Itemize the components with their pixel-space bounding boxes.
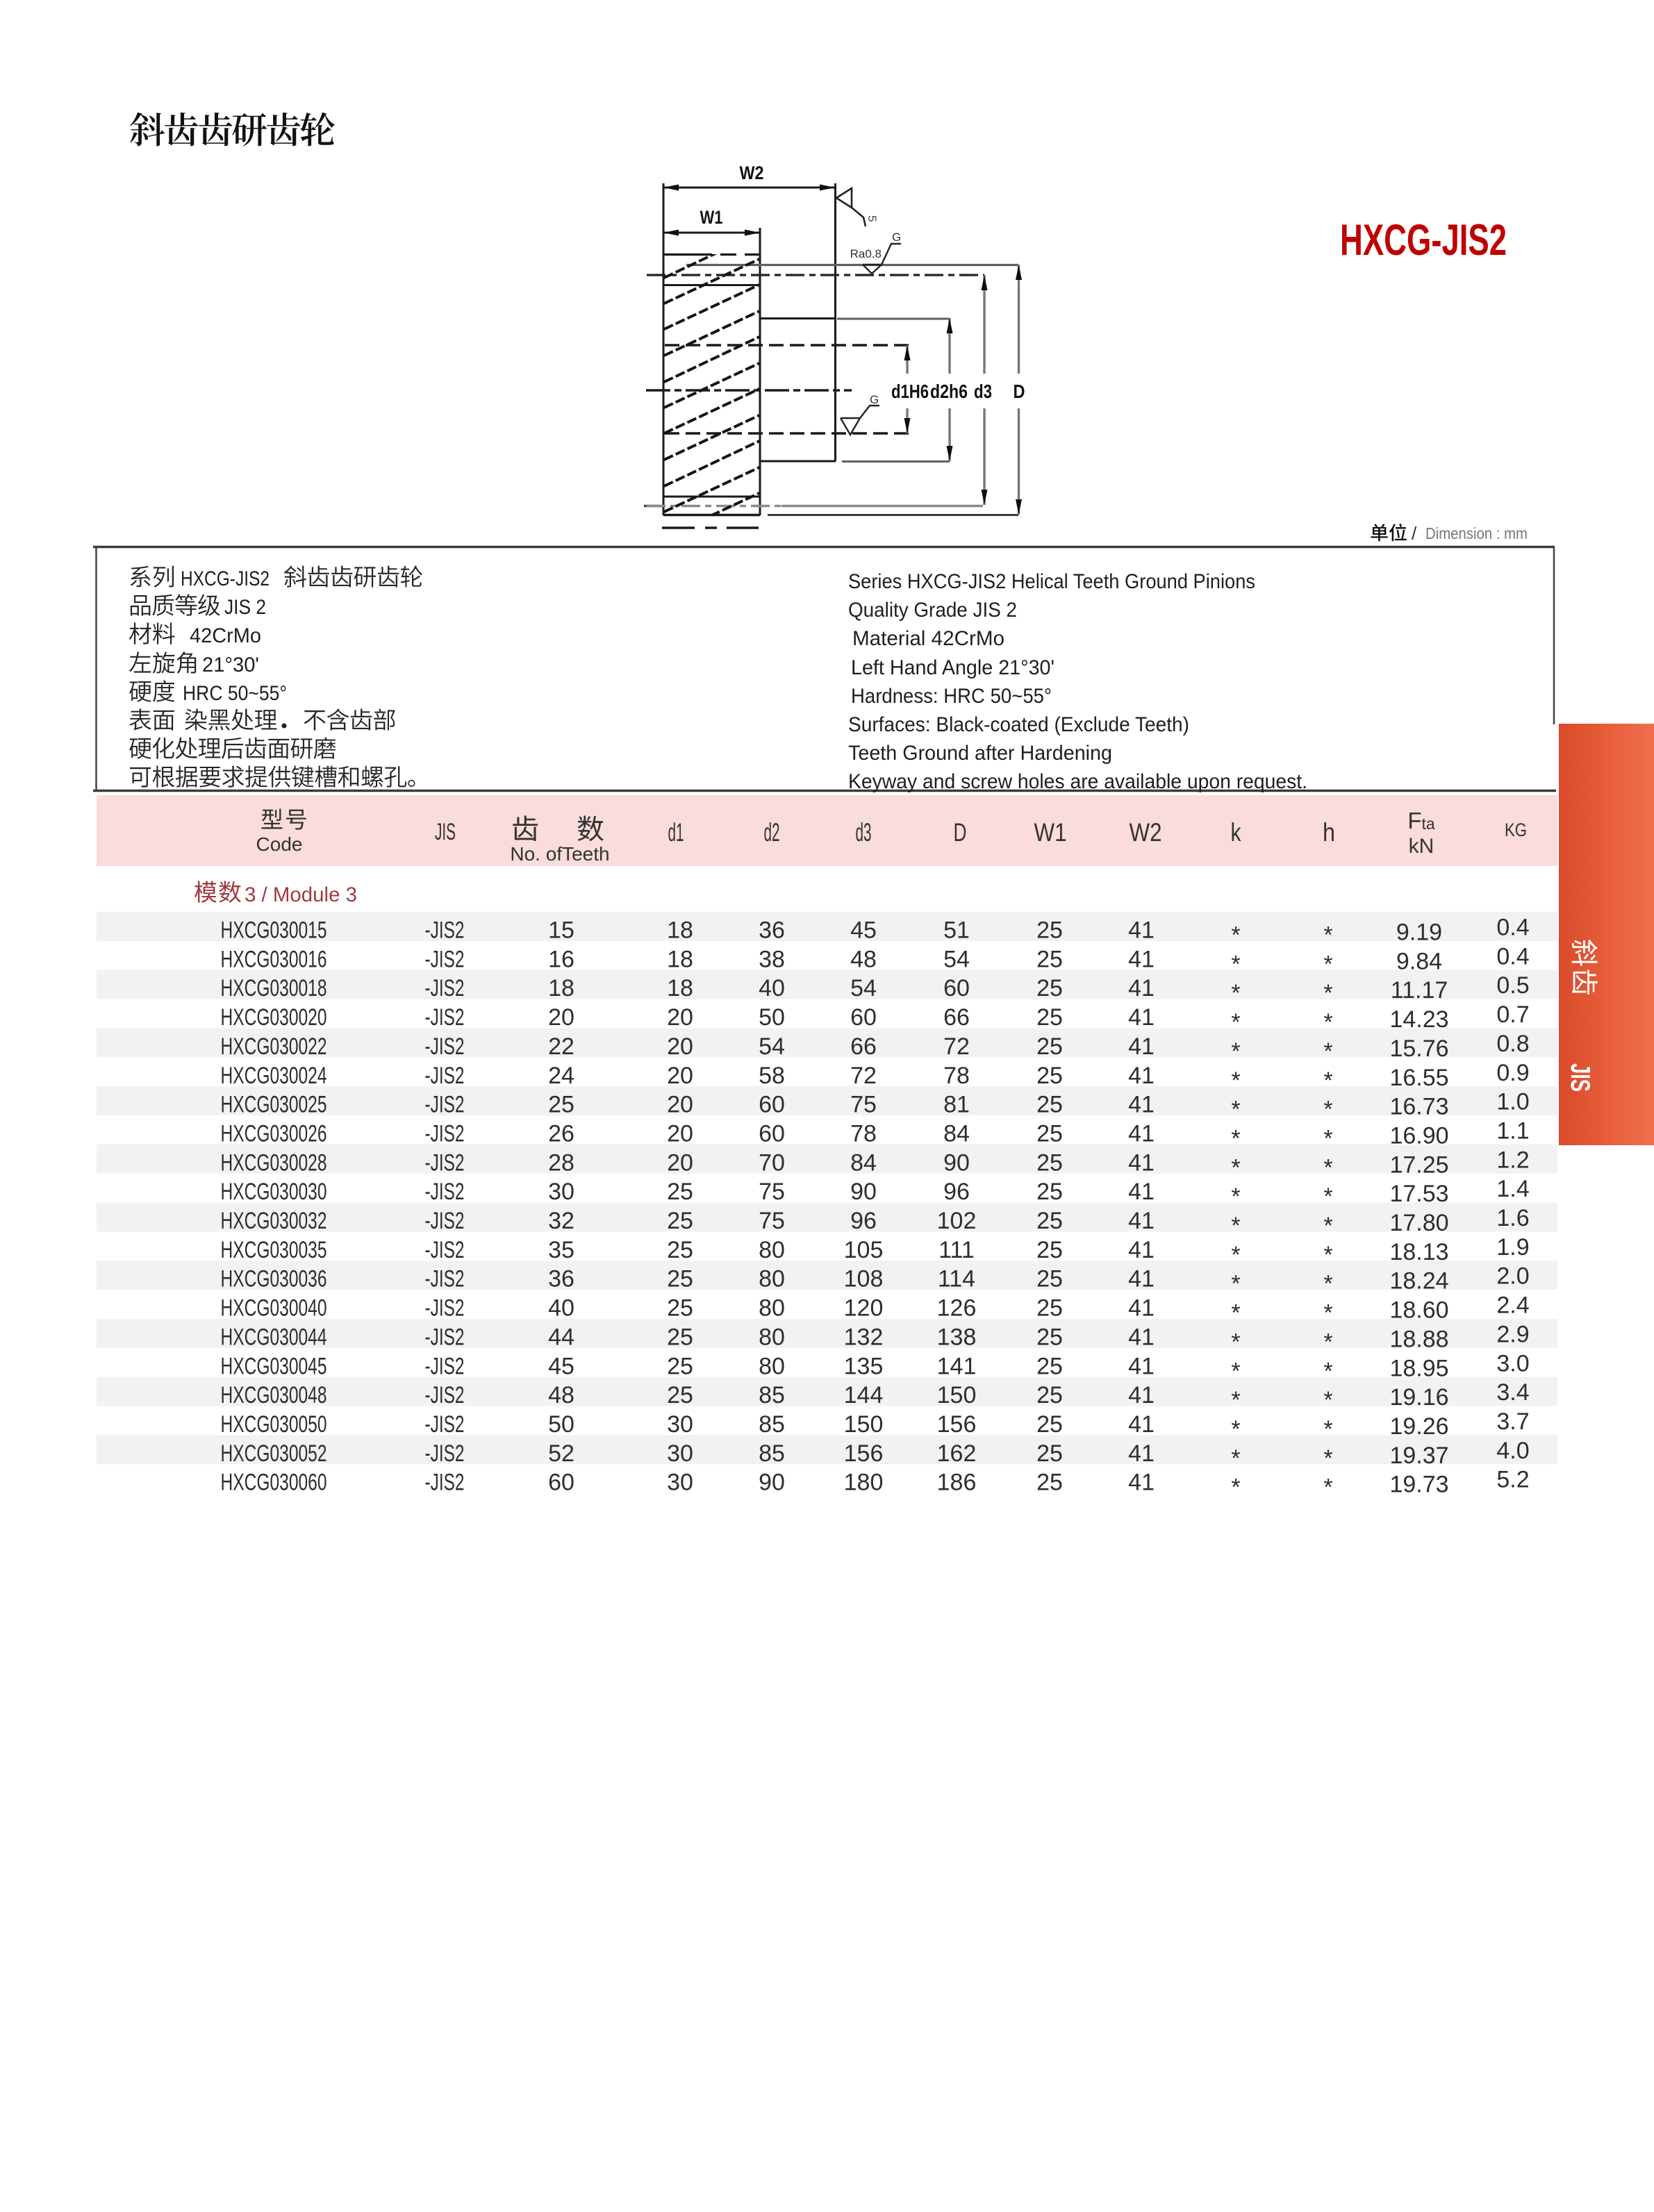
svg-text:-JIS2: -JIS2 <box>425 975 465 1001</box>
svg-text:Code: Code <box>256 833 303 855</box>
svg-text:48: 48 <box>548 1382 574 1408</box>
svg-text:Teeth Ground after Hardening: Teeth Ground after Hardening <box>848 742 1112 765</box>
svg-text:60: 60 <box>548 1470 574 1496</box>
svg-text:k: k <box>1231 818 1241 847</box>
svg-text:144: 144 <box>844 1382 884 1408</box>
svg-text:25: 25 <box>548 1092 574 1118</box>
svg-text:-JIS2: -JIS2 <box>425 1266 465 1292</box>
svg-text:2.9: 2.9 <box>1496 1321 1529 1347</box>
svg-text:*: * <box>1231 1271 1240 1297</box>
svg-text:Series HXCG-JIS2 Helical Tee: Series HXCG-JIS2 Helical Teeth Ground Pi… <box>848 570 1255 593</box>
svg-text:41: 41 <box>1128 1470 1155 1496</box>
svg-text:25: 25 <box>1036 1295 1063 1322</box>
svg-text:41: 41 <box>1128 1033 1155 1060</box>
svg-text:JIS: JIS <box>1565 1063 1595 1092</box>
svg-text:16: 16 <box>548 946 574 972</box>
svg-text:41: 41 <box>1128 946 1155 972</box>
svg-text:18: 18 <box>667 917 693 944</box>
svg-text:25: 25 <box>1036 1208 1063 1234</box>
svg-text:*: * <box>1323 1038 1332 1065</box>
svg-text:25: 25 <box>1036 1440 1063 1467</box>
svg-text:3.4: 3.4 <box>1496 1379 1529 1406</box>
svg-text:72: 72 <box>943 1033 970 1060</box>
svg-text:20: 20 <box>667 1120 693 1147</box>
svg-text:41: 41 <box>1128 1063 1155 1089</box>
svg-text:*: * <box>1323 1387 1332 1413</box>
svg-text:-JIS2: -JIS2 <box>425 1179 465 1205</box>
svg-text:-JIS2: -JIS2 <box>425 1353 465 1379</box>
svg-text:25: 25 <box>667 1179 693 1205</box>
svg-text:41: 41 <box>1128 1120 1155 1147</box>
svg-text:JIS 2: JIS 2 <box>224 596 266 619</box>
svg-text:HXCG030025: HXCG030025 <box>221 1092 327 1118</box>
svg-text:D: D <box>954 818 967 847</box>
svg-text:HXCG030044: HXCG030044 <box>221 1324 327 1350</box>
svg-text:156: 156 <box>844 1440 884 1467</box>
svg-text:20: 20 <box>667 1063 693 1089</box>
svg-text:25: 25 <box>1036 946 1063 972</box>
svg-text:*: * <box>1231 1445 1240 1472</box>
svg-text:kN: kN <box>1409 835 1434 858</box>
svg-text:-JIS2: -JIS2 <box>425 1033 465 1060</box>
svg-text:*: * <box>1323 1271 1332 1297</box>
svg-text:186: 186 <box>937 1470 977 1496</box>
svg-text:*: * <box>1323 922 1332 949</box>
svg-text:32: 32 <box>548 1208 574 1234</box>
svg-text:18.24: 18.24 <box>1389 1268 1448 1295</box>
svg-text:0.7: 0.7 <box>1496 1001 1529 1028</box>
svg-text:Keyway and screw holes are a: Keyway and screw holes are available upo… <box>848 770 1307 793</box>
svg-text:18.88: 18.88 <box>1389 1326 1448 1352</box>
svg-text:20: 20 <box>667 1004 693 1031</box>
svg-text:141: 141 <box>937 1353 977 1379</box>
svg-text:-JIS2: -JIS2 <box>425 1149 465 1176</box>
svg-text:40: 40 <box>759 975 785 1001</box>
svg-text:41: 41 <box>1128 1149 1155 1176</box>
svg-text:-JIS2: -JIS2 <box>425 1004 465 1031</box>
svg-text:HXCG030016: HXCG030016 <box>221 946 327 972</box>
svg-text:W1: W1 <box>1034 818 1067 847</box>
svg-text:40: 40 <box>548 1295 574 1322</box>
svg-text:HXCG030030: HXCG030030 <box>221 1179 327 1205</box>
svg-text:36: 36 <box>759 917 785 944</box>
svg-text:78: 78 <box>943 1063 970 1089</box>
svg-text:25: 25 <box>1036 1120 1063 1147</box>
svg-text:18: 18 <box>667 946 693 972</box>
svg-text:HXCG030035: HXCG030035 <box>221 1237 327 1263</box>
svg-text:0.8: 0.8 <box>1496 1031 1529 1057</box>
svg-text:54: 54 <box>850 975 877 1001</box>
svg-text:41: 41 <box>1128 1324 1155 1350</box>
svg-text:W2: W2 <box>1130 818 1162 847</box>
svg-text:111: 111 <box>938 1237 975 1263</box>
svg-text:25: 25 <box>1036 1470 1063 1496</box>
svg-text:9.19: 9.19 <box>1396 920 1442 946</box>
svg-text:120: 120 <box>844 1295 884 1322</box>
svg-text:-JIS2: -JIS2 <box>425 1382 465 1408</box>
svg-text:41: 41 <box>1128 1353 1155 1379</box>
svg-text:156: 156 <box>937 1411 977 1438</box>
svg-text:25: 25 <box>1036 1149 1063 1176</box>
svg-text:180: 180 <box>844 1470 884 1496</box>
svg-text:90: 90 <box>943 1149 970 1176</box>
svg-text:30: 30 <box>667 1470 693 1496</box>
svg-text:30: 30 <box>667 1411 693 1438</box>
svg-text:138: 138 <box>937 1324 977 1350</box>
svg-text:25: 25 <box>1036 917 1063 944</box>
svg-text:*: * <box>1323 1154 1332 1181</box>
svg-text:41: 41 <box>1128 1208 1155 1234</box>
svg-text:21°30': 21°30' <box>202 654 259 676</box>
svg-text:*: * <box>1323 1474 1332 1501</box>
svg-text:41: 41 <box>1128 1411 1155 1438</box>
svg-text:135: 135 <box>844 1353 884 1379</box>
svg-text:d3: d3 <box>974 381 992 402</box>
svg-text:5.2: 5.2 <box>1496 1467 1529 1493</box>
svg-text:25: 25 <box>1036 1324 1063 1350</box>
svg-text:114: 114 <box>938 1266 975 1292</box>
svg-text:1.6: 1.6 <box>1496 1205 1529 1231</box>
svg-text:Surfaces: Black-coated (Excl: Surfaces: Black-coated (Exclude Teeth) <box>848 713 1189 736</box>
svg-text:24: 24 <box>548 1063 574 1089</box>
svg-text:66: 66 <box>850 1033 877 1060</box>
svg-text:G: G <box>870 393 879 406</box>
svg-text:41: 41 <box>1128 1266 1155 1292</box>
svg-text:11.17: 11.17 <box>1391 977 1448 1004</box>
svg-text:*: * <box>1231 1097 1240 1123</box>
svg-text:*: * <box>1323 1445 1332 1472</box>
svg-text:25: 25 <box>1036 1033 1063 1060</box>
svg-text:-JIS2: -JIS2 <box>425 946 465 972</box>
svg-text:36: 36 <box>548 1266 574 1292</box>
svg-text:50: 50 <box>759 1004 785 1031</box>
svg-text:41: 41 <box>1128 1179 1155 1205</box>
svg-text:G: G <box>892 231 901 244</box>
svg-text:*: * <box>1231 1387 1240 1413</box>
svg-text:80: 80 <box>759 1295 785 1322</box>
svg-text:25: 25 <box>1036 1004 1063 1031</box>
svg-text:70: 70 <box>759 1149 785 1176</box>
svg-text:41: 41 <box>1128 1004 1155 1031</box>
svg-text:96: 96 <box>850 1208 877 1234</box>
svg-text:HXCG030060: HXCG030060 <box>221 1470 327 1496</box>
svg-text:Hardness: HRC 50~55°: Hardness: HRC 50~55° <box>851 685 1052 708</box>
svg-text:30: 30 <box>667 1440 693 1467</box>
svg-text:d2: d2 <box>764 818 780 847</box>
svg-text:41: 41 <box>1128 975 1155 1001</box>
svg-text:25: 25 <box>1036 975 1063 1001</box>
svg-text:-JIS2: -JIS2 <box>425 917 465 944</box>
svg-text:75: 75 <box>759 1179 785 1205</box>
svg-text:80: 80 <box>759 1324 785 1350</box>
svg-text:25: 25 <box>1036 1092 1063 1118</box>
svg-text:80: 80 <box>759 1237 785 1263</box>
svg-text:28: 28 <box>548 1149 574 1176</box>
svg-text:d2h6: d2h6 <box>930 381 968 402</box>
svg-text:19.73: 19.73 <box>1389 1472 1448 1498</box>
svg-text:HXCG030015: HXCG030015 <box>221 917 327 944</box>
svg-text:22: 22 <box>548 1033 574 1060</box>
svg-text:17.25: 17.25 <box>1389 1151 1448 1178</box>
svg-text:75: 75 <box>759 1208 785 1234</box>
svg-text:51: 51 <box>943 917 970 944</box>
svg-text:-JIS2: -JIS2 <box>425 1470 465 1496</box>
svg-text:3 / Module 3: 3 / Module 3 <box>245 883 357 906</box>
svg-text:80: 80 <box>759 1353 785 1379</box>
svg-text:4.0: 4.0 <box>1496 1438 1529 1464</box>
svg-text:HXCG030036: HXCG030036 <box>221 1266 327 1292</box>
svg-text:17.80: 17.80 <box>1389 1210 1448 1236</box>
svg-text:16.73: 16.73 <box>1389 1094 1448 1120</box>
svg-text:54: 54 <box>943 946 970 972</box>
svg-text:25: 25 <box>1036 1382 1063 1408</box>
svg-text:25: 25 <box>1036 1411 1063 1438</box>
svg-text:25: 25 <box>1036 1353 1063 1379</box>
svg-text:HXCG030048: HXCG030048 <box>221 1382 327 1408</box>
svg-text:38: 38 <box>759 946 785 972</box>
svg-text:1.0: 1.0 <box>1496 1089 1529 1115</box>
svg-text:2.0: 2.0 <box>1496 1263 1529 1290</box>
svg-text:108: 108 <box>844 1266 884 1292</box>
svg-text:42CrMo: 42CrMo <box>190 624 261 647</box>
svg-text:HXCG030024: HXCG030024 <box>221 1063 327 1089</box>
svg-text:*: * <box>1231 1213 1240 1239</box>
svg-text:-JIS2: -JIS2 <box>425 1237 465 1263</box>
svg-text:-JIS2: -JIS2 <box>425 1411 465 1438</box>
svg-text:50: 50 <box>548 1411 574 1438</box>
svg-text:162: 162 <box>937 1440 977 1467</box>
svg-text:KG: KG <box>1505 820 1527 840</box>
svg-text:*: * <box>1323 980 1332 1006</box>
svg-text:84: 84 <box>943 1120 970 1147</box>
svg-text:90: 90 <box>850 1179 877 1205</box>
svg-text:44: 44 <box>548 1324 574 1350</box>
svg-text:0.4: 0.4 <box>1496 943 1529 970</box>
svg-text:60: 60 <box>759 1092 785 1118</box>
svg-text:78: 78 <box>850 1120 877 1147</box>
svg-text:18: 18 <box>548 975 574 1001</box>
svg-text:66: 66 <box>943 1004 970 1031</box>
svg-text:HXCG030028: HXCG030028 <box>221 1149 327 1176</box>
svg-text:81: 81 <box>943 1092 970 1118</box>
svg-text:150: 150 <box>937 1382 977 1408</box>
svg-text:*: * <box>1231 1154 1240 1181</box>
svg-text:*: * <box>1231 1474 1240 1501</box>
svg-text:-JIS2: -JIS2 <box>425 1440 465 1467</box>
svg-text:HXCG030022: HXCG030022 <box>221 1033 327 1060</box>
svg-text:No. ofTeeth: No. ofTeeth <box>510 843 609 865</box>
svg-text:41: 41 <box>1128 1382 1155 1408</box>
svg-text:2.4: 2.4 <box>1496 1292 1529 1319</box>
svg-text:25: 25 <box>1036 1237 1063 1263</box>
svg-text:25: 25 <box>1036 1266 1063 1292</box>
svg-text:96: 96 <box>943 1179 970 1205</box>
svg-text:84: 84 <box>850 1149 877 1176</box>
svg-text:5: 5 <box>866 215 879 222</box>
svg-text:150: 150 <box>844 1411 884 1438</box>
svg-text:W2: W2 <box>740 163 764 183</box>
svg-text:-JIS2: -JIS2 <box>425 1120 465 1147</box>
svg-text:25: 25 <box>667 1266 693 1292</box>
svg-text:15.76: 15.76 <box>1389 1036 1448 1062</box>
svg-text:3.0: 3.0 <box>1496 1350 1529 1377</box>
svg-text:25: 25 <box>667 1382 693 1408</box>
svg-text:d1H6: d1H6 <box>891 381 929 402</box>
svg-text:25: 25 <box>667 1208 693 1234</box>
svg-text:18: 18 <box>667 975 693 1001</box>
svg-text:HXCG030018: HXCG030018 <box>221 975 327 1001</box>
svg-text:85: 85 <box>759 1440 785 1467</box>
svg-text:132: 132 <box>844 1324 884 1350</box>
svg-text:25: 25 <box>1036 1063 1063 1089</box>
svg-text:60: 60 <box>943 975 970 1001</box>
svg-text:26: 26 <box>548 1120 574 1147</box>
svg-text:*: * <box>1231 1329 1240 1355</box>
svg-text:HRC 50~55°: HRC 50~55° <box>183 682 287 705</box>
svg-text:-JIS2: -JIS2 <box>425 1295 465 1322</box>
svg-text:HXCG030045: HXCG030045 <box>221 1353 327 1379</box>
svg-text:35: 35 <box>548 1237 574 1263</box>
svg-text:25: 25 <box>1036 1179 1063 1205</box>
svg-text:*: * <box>1231 1038 1240 1065</box>
svg-text:-JIS2: -JIS2 <box>425 1324 465 1350</box>
svg-text:*: * <box>1323 1097 1332 1123</box>
svg-text:1.9: 1.9 <box>1496 1234 1529 1261</box>
svg-text:75: 75 <box>850 1092 877 1118</box>
svg-text:h: h <box>1323 818 1335 847</box>
svg-text:HXCG030020: HXCG030020 <box>221 1004 327 1031</box>
svg-text:HXCG030032: HXCG030032 <box>221 1208 327 1234</box>
svg-text:/: / <box>1412 523 1417 544</box>
svg-text:25: 25 <box>667 1353 693 1379</box>
svg-text:HXCG-JIS2: HXCG-JIS2 <box>1340 216 1507 265</box>
svg-text:d3: d3 <box>856 818 872 847</box>
svg-text:HXCG030052: HXCG030052 <box>221 1440 327 1467</box>
svg-text:HXCG030040: HXCG030040 <box>221 1295 327 1322</box>
svg-text:45: 45 <box>548 1353 574 1379</box>
svg-text:25: 25 <box>667 1324 693 1350</box>
svg-text:126: 126 <box>937 1295 977 1322</box>
svg-text:W1: W1 <box>700 207 723 228</box>
svg-text:-JIS2: -JIS2 <box>425 1092 465 1118</box>
svg-text:1.2: 1.2 <box>1496 1147 1529 1173</box>
svg-text:15: 15 <box>548 917 574 944</box>
svg-text:19.16: 19.16 <box>1389 1384 1448 1411</box>
svg-text:1.1: 1.1 <box>1496 1117 1529 1144</box>
svg-text:85: 85 <box>759 1411 785 1438</box>
svg-text:*: * <box>1231 922 1240 949</box>
svg-text:72: 72 <box>850 1063 877 1089</box>
svg-text:102: 102 <box>937 1208 977 1234</box>
svg-text:52: 52 <box>548 1440 574 1467</box>
svg-text:105: 105 <box>844 1237 884 1263</box>
svg-text:*: * <box>1231 980 1240 1006</box>
svg-text:25: 25 <box>667 1237 693 1263</box>
svg-text:-JIS2: -JIS2 <box>425 1208 465 1234</box>
svg-text:54: 54 <box>759 1033 785 1060</box>
svg-text:0.4: 0.4 <box>1496 915 1529 941</box>
svg-text:41: 41 <box>1128 1440 1155 1467</box>
svg-text:20: 20 <box>667 1092 693 1118</box>
svg-text:80: 80 <box>759 1266 785 1292</box>
svg-text:Dimension : mm: Dimension : mm <box>1425 524 1528 542</box>
svg-text:90: 90 <box>759 1470 785 1496</box>
svg-text:41: 41 <box>1128 917 1155 944</box>
svg-text:0.5: 0.5 <box>1496 972 1529 999</box>
svg-text:45: 45 <box>850 917 877 944</box>
svg-text:Material 42CrMo: Material 42CrMo <box>852 627 1004 650</box>
svg-text:58: 58 <box>759 1063 785 1089</box>
svg-text:20: 20 <box>548 1004 574 1031</box>
svg-text:20: 20 <box>667 1149 693 1176</box>
svg-text:D: D <box>1014 381 1025 402</box>
svg-text:Ra0.8: Ra0.8 <box>850 247 882 260</box>
svg-text:30: 30 <box>548 1179 574 1205</box>
svg-text:19.37: 19.37 <box>1389 1442 1448 1469</box>
svg-text:Quality Grade JIS 2: Quality Grade JIS 2 <box>848 599 1017 622</box>
svg-text:0.9: 0.9 <box>1496 1060 1529 1086</box>
svg-text:*: * <box>1323 1329 1332 1355</box>
svg-text:d1: d1 <box>668 818 684 847</box>
svg-text:3.7: 3.7 <box>1496 1408 1529 1435</box>
svg-text:HXCG-JIS2: HXCG-JIS2 <box>181 567 270 590</box>
svg-text:25: 25 <box>667 1295 693 1322</box>
svg-text:48: 48 <box>850 946 877 972</box>
svg-text:41: 41 <box>1128 1092 1155 1118</box>
svg-text:41: 41 <box>1128 1295 1155 1322</box>
svg-text:85: 85 <box>759 1382 785 1408</box>
svg-text:HXCG030026: HXCG030026 <box>221 1120 327 1147</box>
svg-text:20: 20 <box>667 1033 693 1060</box>
svg-text:60: 60 <box>759 1120 785 1147</box>
svg-text:60: 60 <box>850 1004 877 1031</box>
svg-text:-JIS2: -JIS2 <box>425 1063 465 1089</box>
svg-text:*: * <box>1323 1213 1332 1239</box>
svg-text:JIS: JIS <box>435 819 456 845</box>
svg-text:Left Hand Angle 21°30': Left Hand Angle 21°30' <box>851 656 1055 679</box>
svg-text:1.4: 1.4 <box>1496 1176 1529 1202</box>
svg-text:HXCG030050: HXCG030050 <box>221 1411 327 1438</box>
svg-text:41: 41 <box>1128 1237 1155 1263</box>
